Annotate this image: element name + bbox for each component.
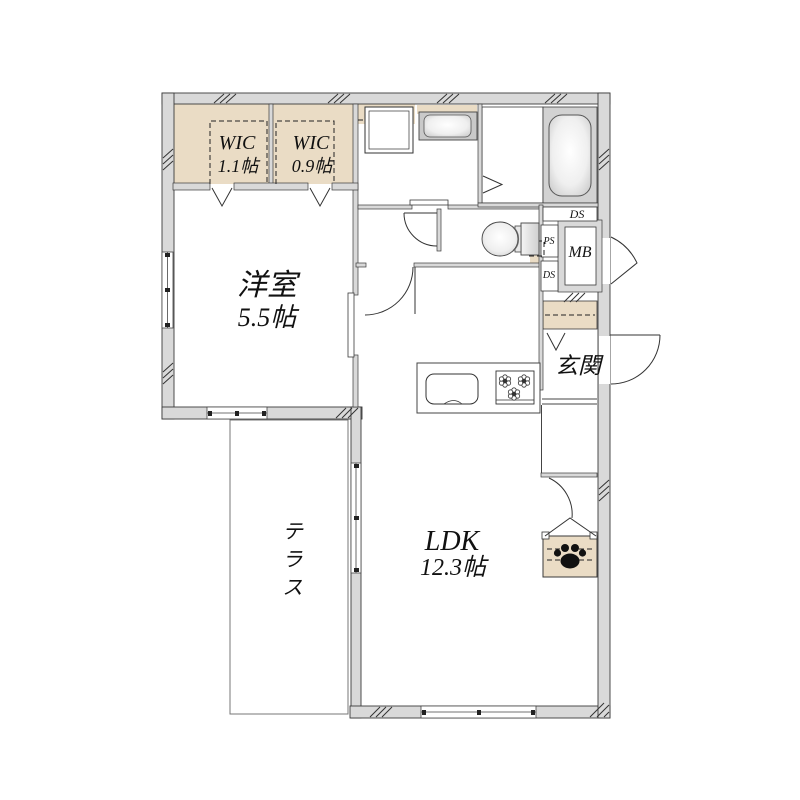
bedroom-sliding-door bbox=[348, 293, 354, 357]
ds-top-label: DS bbox=[570, 208, 585, 220]
meter-box-label: MB bbox=[568, 245, 591, 261]
meter-box-door bbox=[611, 237, 637, 284]
ldk-south-window bbox=[421, 706, 536, 718]
western-room-size: 5.5帖 bbox=[238, 305, 297, 331]
bathtub bbox=[549, 115, 591, 196]
western-room-name: 洋室 bbox=[237, 271, 297, 301]
floorplan-page: { "plan": { "rooms": { "wic1": {"name": … bbox=[0, 0, 800, 800]
toilet-door bbox=[404, 213, 437, 246]
ldk-terrace-window bbox=[351, 463, 361, 573]
entrance-label: 玄関 bbox=[555, 355, 601, 378]
bedroom-terrace-door bbox=[207, 407, 267, 419]
ds-bottom-label: DS bbox=[543, 271, 555, 281]
ldk-hall-door bbox=[365, 267, 415, 315]
kitchen-counter bbox=[417, 363, 540, 413]
wic2-size: 0.9帖 bbox=[292, 157, 333, 175]
ldk-size: 12.3帖 bbox=[420, 556, 486, 580]
wic1-name: WIC bbox=[219, 133, 256, 153]
wic1-opening-mark bbox=[212, 188, 232, 206]
entrance-door bbox=[610, 335, 660, 384]
washing-machine-pan bbox=[365, 107, 413, 153]
wic2-name: WIC bbox=[293, 133, 330, 153]
bathroom bbox=[482, 107, 597, 203]
thin-lines bbox=[542, 399, 598, 473]
wash-basin bbox=[419, 112, 477, 140]
sliding-doors bbox=[348, 200, 448, 357]
toilet bbox=[482, 222, 539, 256]
bedroom-window bbox=[162, 252, 173, 328]
terrace-label: テラス bbox=[281, 520, 302, 604]
washroom-sliding-door bbox=[410, 200, 448, 205]
ps-label: PS bbox=[543, 237, 554, 247]
stove bbox=[496, 371, 534, 404]
floorplan-drawing bbox=[0, 0, 800, 800]
wic1-size: 1.1帖 bbox=[218, 157, 259, 175]
entrance-step-mark bbox=[547, 333, 565, 350]
storage-door bbox=[545, 478, 596, 536]
ldk-name: LDK bbox=[425, 528, 479, 556]
kitchen-sink bbox=[426, 374, 478, 404]
wic2-opening-mark bbox=[310, 188, 330, 206]
